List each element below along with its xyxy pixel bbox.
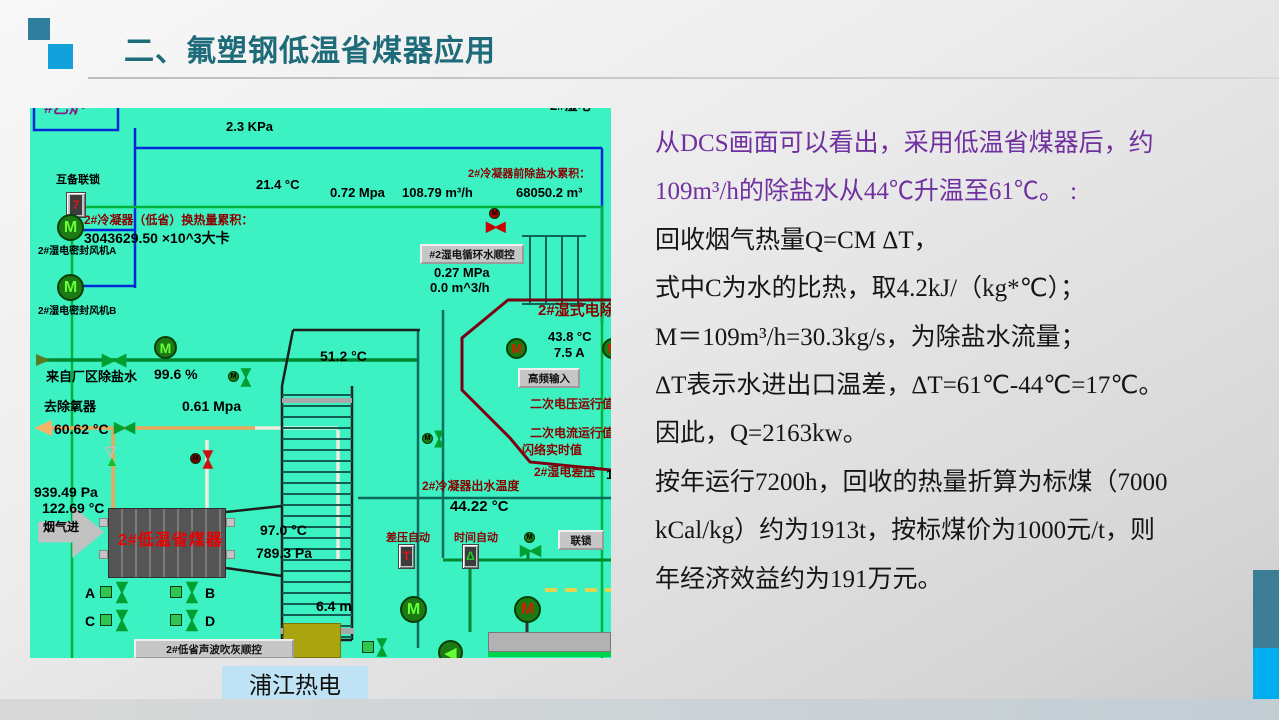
valve-box-icon — [100, 586, 112, 598]
valve-b-label: B — [205, 585, 215, 601]
interlock-button[interactable]: 联锁 — [558, 530, 604, 550]
motor-dot-icon: M — [190, 453, 201, 464]
pre-desalt-total-label: 2#冷凝器前除盐水累积： — [468, 168, 590, 181]
dp-auto-switch[interactable]: T — [398, 544, 415, 569]
plant-name-label: 浦江热电 — [222, 666, 368, 700]
bank-motor-valve[interactable]: M▶◀ — [422, 432, 447, 444]
fan-b-label: 2#湿电密封风机B — [38, 306, 116, 318]
header-square-teal — [28, 18, 50, 40]
valve-opening: 99.6 % — [154, 366, 198, 382]
body-line-9: kCal/kg）约为1913t，按标煤价为1000元/t，则 — [655, 507, 1255, 555]
time-auto-switch[interactable]: Δ — [462, 544, 479, 569]
press-072: 0.72 Mpa — [330, 186, 385, 201]
fan-b-motor[interactable]: M — [57, 274, 84, 301]
flow-00: 0.0 m^3/h — [430, 281, 490, 296]
interlock-label: 互备联锁 — [56, 174, 100, 187]
gray-tank — [488, 632, 611, 652]
current-75: 7.5 A — [554, 346, 585, 361]
hf-input-button[interactable]: 高频输入 — [518, 368, 580, 388]
economizer-tab — [226, 550, 235, 559]
dp-auto-label: 差压自动 — [386, 532, 430, 545]
motor-dot-icon: M — [422, 433, 433, 444]
body-line-8: 按年运行7200h，回收的热量折算为标煤（7000 — [655, 459, 1255, 507]
outlet-temp-label: 2#冷凝器出水温度 — [422, 480, 519, 494]
heat-total-value: 3043629.50 ×10^3大卡 — [84, 230, 230, 246]
circwater-red-valve[interactable]: M▶◀ — [486, 208, 504, 233]
body-line-10: 年经济效益约为191万元。 — [655, 556, 1255, 604]
body-line-3: 回收烟气热量Q=CM ΔT， — [655, 217, 1255, 265]
valve-box-icon — [362, 641, 374, 653]
wesp-dp-label: 2#湿电差压 — [534, 466, 595, 480]
outlet-temp-value: 44.22 °C — [450, 498, 509, 515]
economizer-tab — [226, 518, 235, 527]
valve-c-label: C — [85, 613, 95, 629]
valve-box-icon — [170, 614, 182, 626]
temp-6062: 60.62 °C — [54, 421, 109, 437]
valve-box-icon — [100, 614, 112, 626]
bottomright-pump-motor[interactable]: M — [514, 596, 541, 623]
temp-214: 21.4 °C — [256, 178, 300, 193]
valve-a[interactable]: ▶◀ — [100, 584, 132, 599]
sec-voltage-label: 二次电压运行值 — [530, 398, 611, 412]
temp-970: 97.0 °C — [260, 522, 307, 538]
temp-12269: 122.69 °C — [42, 500, 104, 516]
valve-c[interactable]: ▶◀ — [100, 612, 132, 627]
valve-d[interactable]: ▶◀ — [170, 612, 202, 627]
flue-in-label: 烟气进 — [43, 521, 79, 535]
slide: { "slide": { "title": "二、氟塑钢低温省煤器应用", "f… — [0, 0, 1279, 720]
valve-b[interactable]: ▶◀ — [170, 584, 202, 599]
time-auto-label: 时间自动 — [454, 532, 498, 545]
press-027: 0.27 MPa — [434, 266, 490, 281]
press-93949: 939.49 Pa — [34, 484, 98, 500]
economizer-tab — [99, 518, 108, 527]
body-text: 从DCS画面可以看出，采用低温省煤器后，约109m³/h的除盐水从44℃升温至6… — [655, 120, 1255, 604]
deaerator-valve[interactable]: ▶◀ — [114, 420, 133, 435]
deaerator-label: 去除氧器 — [44, 400, 96, 415]
header-square-blue — [48, 44, 73, 69]
wesp-title: 2#湿式电除尘器 — [538, 302, 611, 319]
drain-valve[interactable]: ▶◀ — [362, 640, 391, 653]
temp-512: 51.2 °C — [320, 348, 367, 364]
switch-glyph-icon: Δ — [465, 547, 476, 565]
pressure-top: 2.3 KPa — [226, 120, 273, 135]
desalt-src-label: 来自厂区除盐水 — [46, 370, 137, 385]
header-divider — [88, 77, 1279, 79]
bank-gray-bar-top — [282, 398, 352, 403]
level-64: 6.4 m — [316, 598, 352, 614]
economizer-soot-seq-button[interactable]: 2#低省声波吹灰顺控 — [134, 639, 294, 658]
body-line-7: 因此，Q=2163kw。 — [655, 410, 1255, 458]
heat-total-label: 2#冷凝器（低省）换热量累积： — [84, 214, 253, 228]
wesp-motor-left[interactable]: M — [506, 338, 527, 359]
press-7893: 789.3 Pa — [256, 545, 312, 561]
boiler-label: #乙炉 — [44, 108, 85, 118]
edge-bar-teal — [1253, 570, 1279, 648]
switch-glyph-icon: T — [401, 547, 412, 565]
pre-desalt-total-value: 68050.2 m³ — [516, 186, 583, 201]
dcs-screen: #乙炉2#湿电互备联锁2.3 KPa2#湿电密封风机A2#湿电密封风机B21.4… — [30, 108, 611, 658]
body-line-1: 从DCS画面可以看出，采用低温省煤器后，约 — [655, 120, 1255, 168]
body-line-5: M＝109m³/h=30.3kg/s，为除盐水流量； — [655, 314, 1255, 362]
body-line-6: ΔT表示水进出口温差，ΔT=61℃-44℃=17℃。 — [655, 362, 1255, 410]
top-edge-cut-label: 2#湿电 — [550, 108, 590, 114]
bottomleft-pump-motor[interactable]: M — [400, 596, 427, 623]
flashover-label: 闪络实时值 — [522, 444, 582, 458]
bottom-band — [0, 699, 1279, 720]
wesp-circwater-seq-button[interactable]: #2湿电循环水顺控 — [420, 244, 524, 264]
interlock-motor-valve[interactable]: M▶◀ — [520, 532, 539, 558]
feed-triangle-valve[interactable]: ▽▲ — [105, 446, 119, 466]
feed-red-motor-valve[interactable]: M▶◀ — [190, 452, 217, 465]
sec-current-label: 二次电流运行值 — [530, 427, 611, 441]
press-061: 0.61 Mpa — [182, 398, 241, 414]
circ-pump[interactable]: ◀ — [438, 640, 463, 658]
fan-a-motor[interactable]: M — [57, 214, 84, 241]
mid-motor-valve[interactable]: M▶◀ — [228, 370, 255, 383]
economizer-tab — [99, 550, 108, 559]
body-line-2: 109m³/h的除盐水从44℃升温至61℃。 : — [655, 168, 1255, 216]
motor-dot-icon: M — [228, 371, 239, 382]
feedwater-motor-valve[interactable]: M — [154, 336, 177, 359]
switch-glyph-icon: 7 — [70, 195, 83, 214]
valve-box-icon — [170, 586, 182, 598]
main-water-valve[interactable]: ▶◀ — [102, 351, 124, 368]
valve-a-label: A — [85, 585, 95, 601]
valve-d-label: D — [205, 613, 215, 629]
body-line-4: 式中C为水的比热，取4.2kJ/（kg*℃）； — [655, 265, 1255, 313]
page-title: 二、氟塑钢低温省煤器应用 — [124, 26, 496, 70]
flow-10879: 108.79 m³/h — [402, 186, 473, 201]
wesp-dp-value: 1 — [606, 468, 611, 483]
fan-a-label: 2#湿电密封风机A — [38, 246, 116, 258]
economizer-label: 2#低温省煤器 — [118, 532, 223, 550]
temp-438: 43.8 °C — [548, 330, 592, 345]
